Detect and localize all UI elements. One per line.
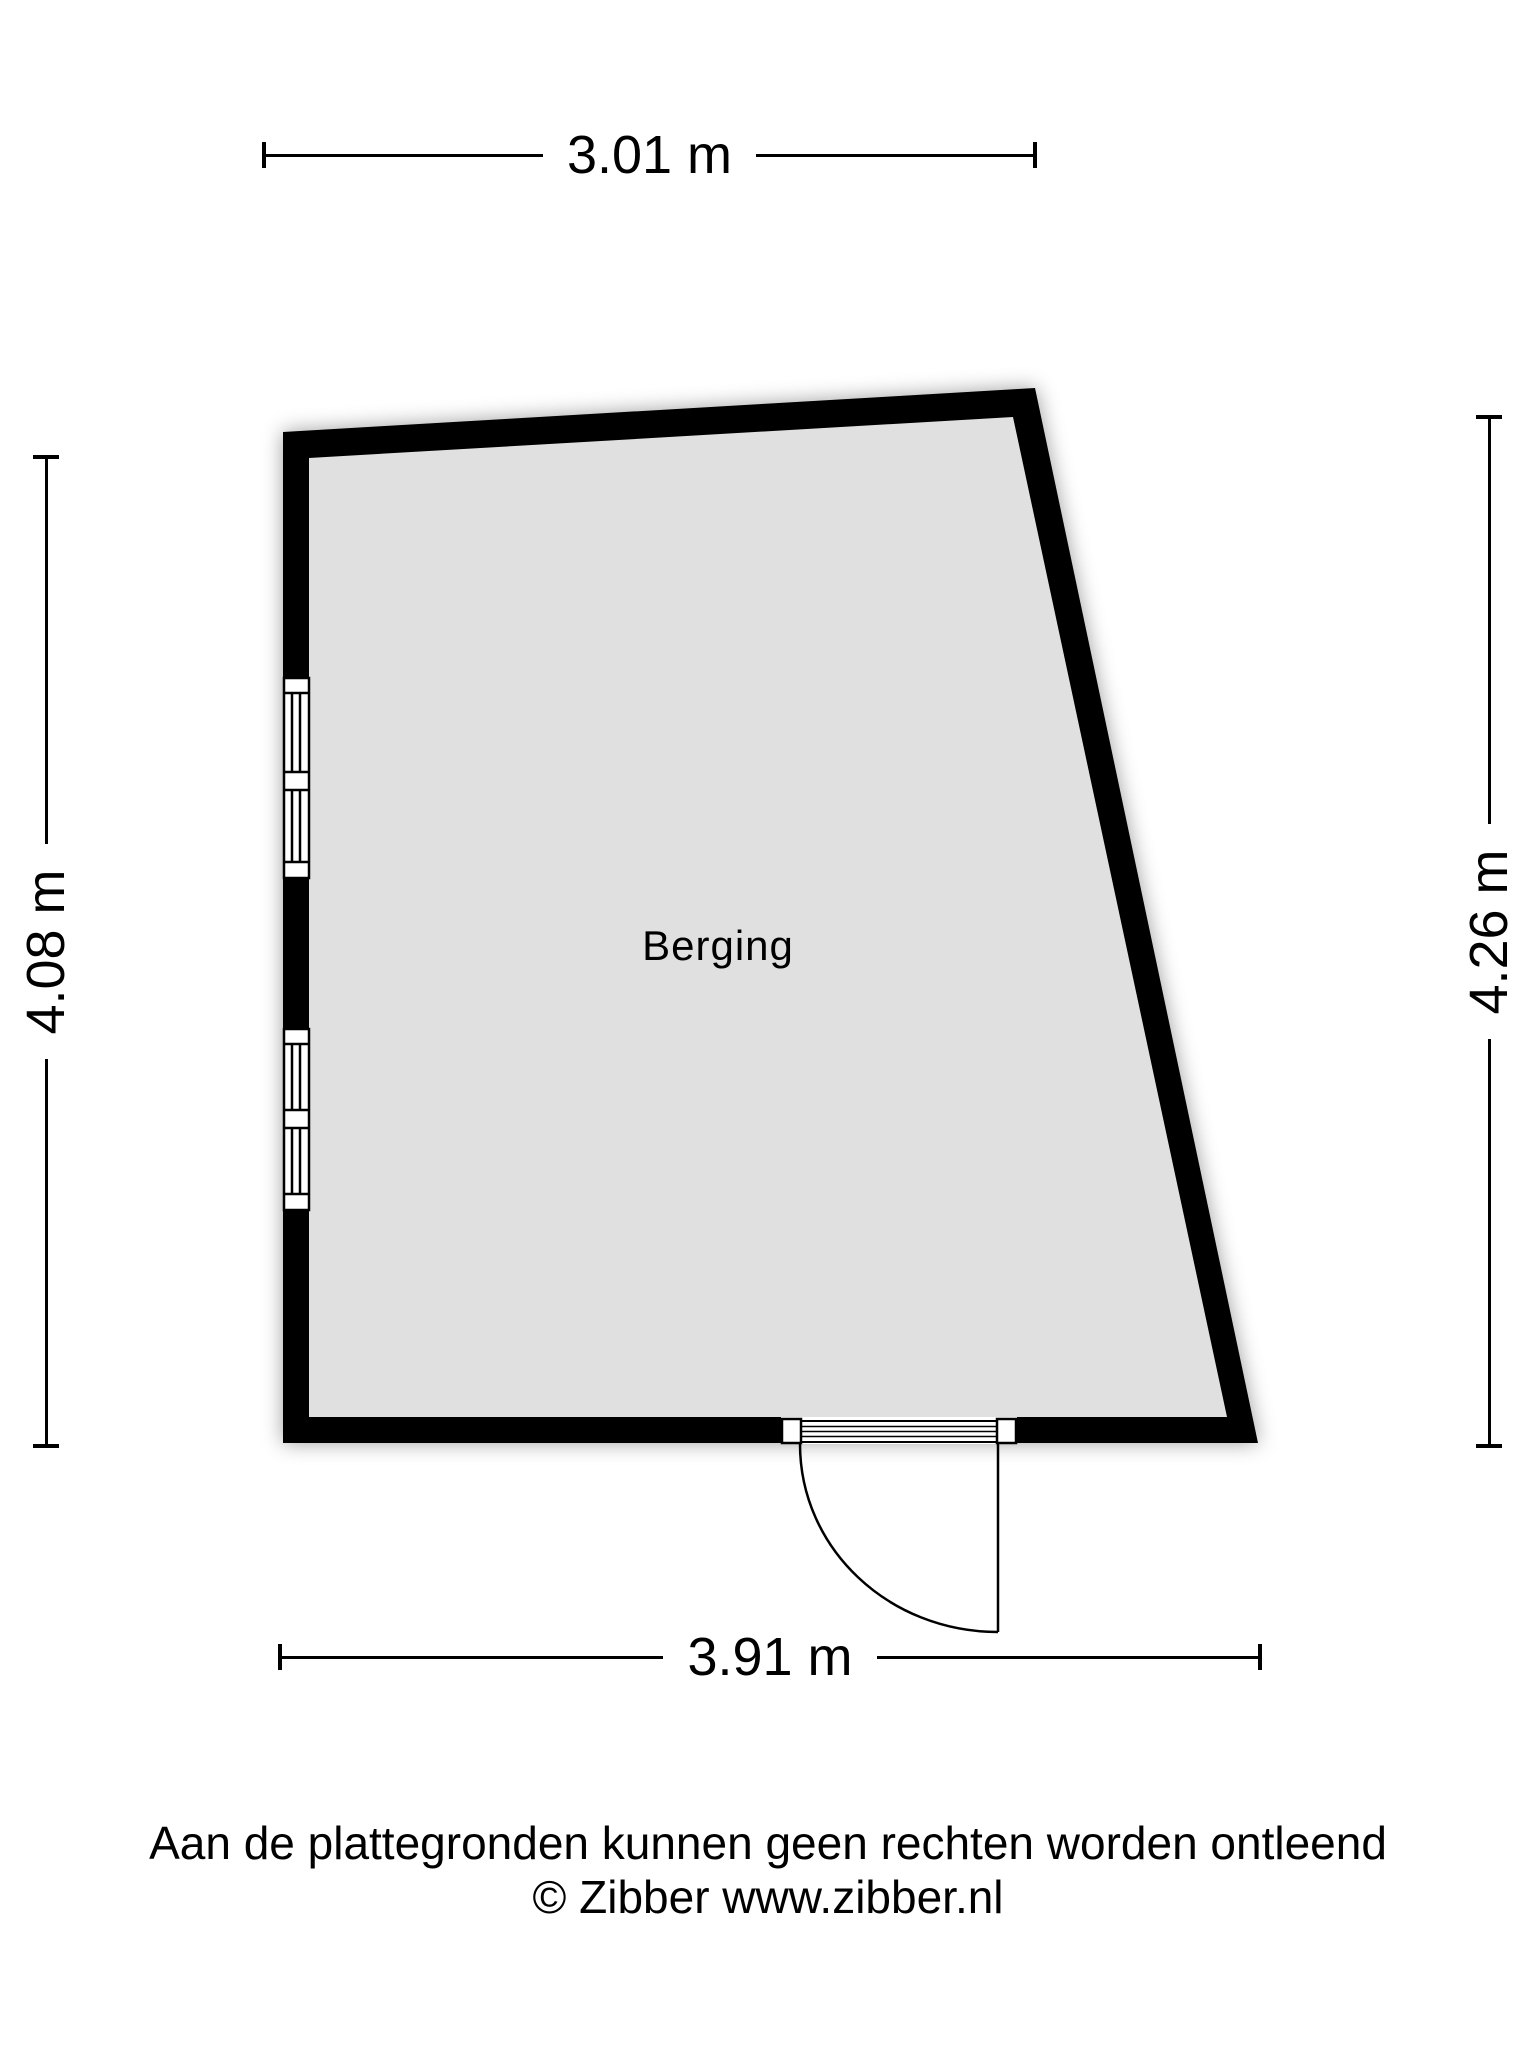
room-floor <box>309 417 1227 1417</box>
floorplan-drawing <box>0 0 1536 2048</box>
window-frame <box>284 678 309 878</box>
dimension-top: 3.01 m <box>262 123 1037 187</box>
footer: Aan de plattegronden kunnen geen rechten… <box>0 1816 1536 1924</box>
window-frame <box>284 1029 309 1210</box>
door <box>781 1417 1017 1632</box>
dimension-line <box>756 154 1033 157</box>
dimension-tick <box>1476 1444 1502 1448</box>
dimension-bottom: 3.91 m <box>278 1625 1262 1689</box>
dimension-line <box>45 459 48 844</box>
window-upper <box>284 678 309 878</box>
dimension-tick <box>1258 1644 1262 1670</box>
dimension-right: 4.26 m <box>1457 415 1521 1448</box>
room-name-label: Berging <box>468 922 968 970</box>
dimension-line <box>45 1059 48 1444</box>
window-lower <box>284 1029 309 1210</box>
dimension-right-label: 4.26 m <box>1457 824 1521 1039</box>
dimension-line <box>1488 419 1491 824</box>
dimension-top-label: 3.01 m <box>543 123 756 187</box>
dimension-tick <box>1033 142 1037 168</box>
dimension-left-label: 4.08 m <box>14 844 78 1059</box>
dimension-left: 4.08 m <box>14 455 78 1448</box>
dimension-line <box>266 154 543 157</box>
dimension-bottom-label: 3.91 m <box>663 1625 876 1689</box>
copyright-text: © Zibber www.zibber.nl <box>0 1870 1536 1924</box>
floorplan-page: Berging 3.01 m 3.91 m 4.08 m 4.26 m <box>0 0 1536 2048</box>
dimension-line <box>1488 1039 1491 1444</box>
dimension-line <box>282 1656 663 1659</box>
disclaimer-text: Aan de plattegronden kunnen geen rechten… <box>0 1816 1536 1870</box>
door-swing-arc <box>800 1444 998 1632</box>
door-jamb-right <box>997 1419 1016 1443</box>
door-jamb-left <box>782 1419 801 1443</box>
dimension-line <box>877 1656 1258 1659</box>
dimension-tick <box>33 1444 59 1448</box>
